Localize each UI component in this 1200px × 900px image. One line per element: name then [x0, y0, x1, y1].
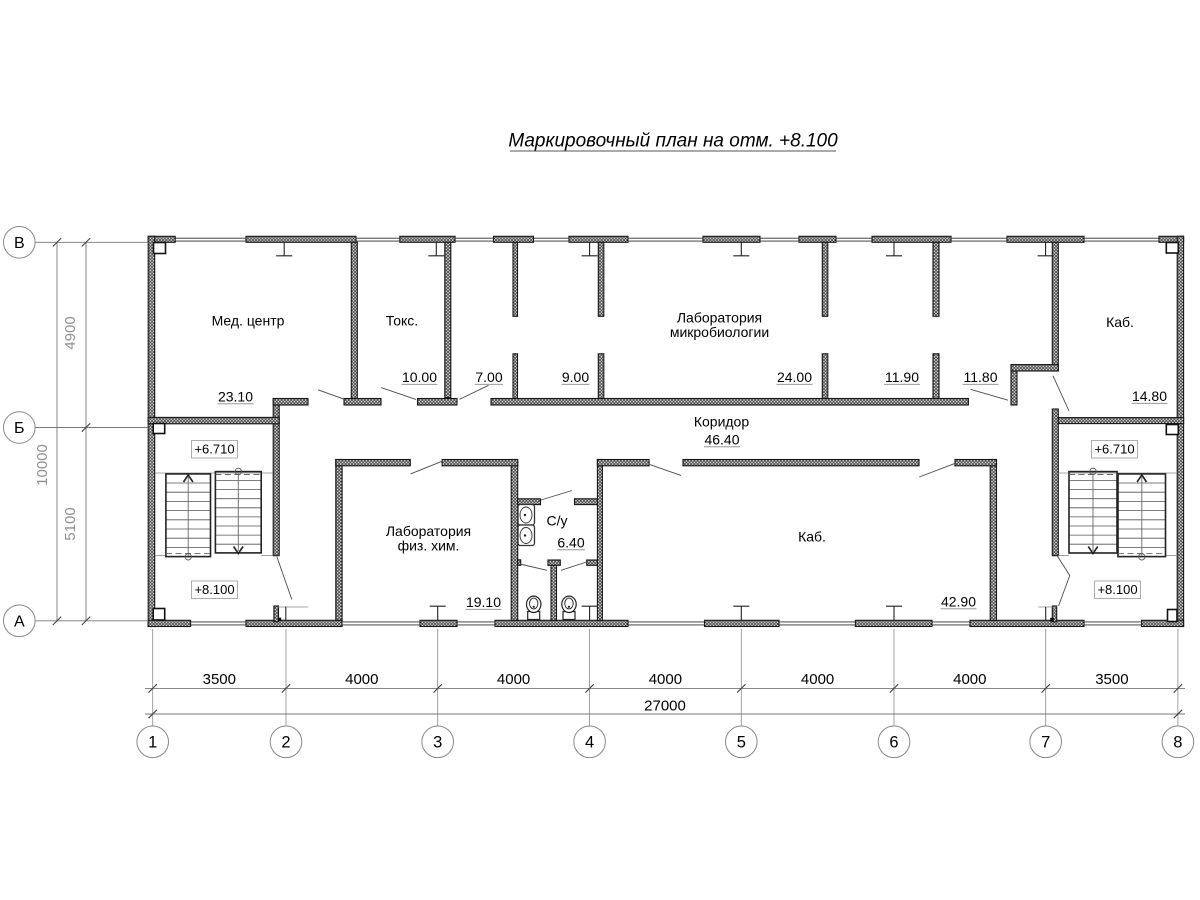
svg-text:А: А — [14, 614, 25, 631]
svg-text:3500: 3500 — [203, 671, 236, 688]
svg-text:1: 1 — [148, 734, 157, 752]
svg-text:Маркировочный план на отм. +8.: Маркировочный план на отм. +8.100 — [508, 131, 838, 152]
svg-text:4: 4 — [585, 734, 594, 752]
svg-text:Мед. центр: Мед. центр — [212, 313, 285, 329]
svg-text:8: 8 — [1173, 734, 1182, 752]
svg-text:19.10: 19.10 — [466, 594, 501, 610]
svg-text:5: 5 — [737, 734, 746, 752]
svg-text:11.80: 11.80 — [964, 369, 998, 385]
svg-text:6: 6 — [889, 734, 898, 752]
svg-text:Токс.: Токс. — [386, 313, 418, 329]
svg-text:Каб.: Каб. — [798, 529, 826, 545]
svg-text:4000: 4000 — [345, 671, 378, 688]
svg-text:физ. хим.: физ. хим. — [398, 538, 460, 554]
svg-text:С/у: С/у — [547, 513, 568, 529]
svg-text:+6.710: +6.710 — [1094, 442, 1134, 457]
svg-text:2: 2 — [281, 734, 290, 752]
svg-text:24.00: 24.00 — [777, 369, 812, 385]
svg-text:4000: 4000 — [953, 671, 986, 688]
svg-text:4900: 4900 — [62, 316, 79, 349]
svg-text:+8.100: +8.100 — [194, 582, 234, 597]
svg-text:+8.100: +8.100 — [1097, 582, 1137, 597]
svg-text:4000: 4000 — [649, 671, 682, 688]
svg-text:11.90: 11.90 — [885, 369, 919, 385]
svg-text:42.90: 42.90 — [941, 594, 976, 610]
svg-text:4000: 4000 — [801, 671, 834, 688]
svg-text:Коридор: Коридор — [694, 414, 750, 430]
svg-text:9.00: 9.00 — [562, 369, 589, 385]
svg-text:3500: 3500 — [1095, 671, 1128, 688]
svg-text:3: 3 — [433, 734, 442, 752]
svg-text:7: 7 — [1041, 734, 1050, 752]
svg-text:23.10: 23.10 — [218, 389, 253, 405]
svg-text:4000: 4000 — [497, 671, 530, 688]
svg-text:6.40: 6.40 — [557, 535, 584, 551]
svg-text:+6.710: +6.710 — [194, 442, 234, 457]
svg-text:Каб.: Каб. — [1106, 314, 1134, 330]
svg-text:В: В — [14, 235, 25, 252]
svg-text:10.00: 10.00 — [402, 369, 437, 385]
svg-text:27000: 27000 — [644, 698, 686, 715]
svg-text:микробиологии: микробиологии — [670, 324, 769, 340]
svg-text:7.00: 7.00 — [475, 369, 502, 385]
svg-text:46.40: 46.40 — [704, 432, 739, 448]
svg-text:5100: 5100 — [62, 507, 79, 540]
svg-text:14.80: 14.80 — [1132, 388, 1167, 404]
svg-text:10000: 10000 — [34, 444, 51, 486]
svg-text:Б: Б — [14, 420, 25, 437]
